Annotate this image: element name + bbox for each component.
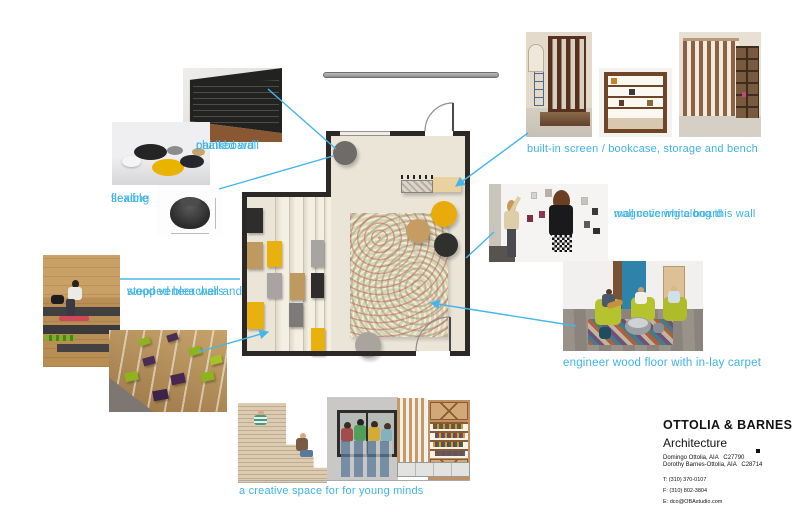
coat-hooks <box>401 175 435 179</box>
cushion-green <box>138 336 151 346</box>
sketch-person-jeans <box>300 450 313 457</box>
cushion-yellow <box>267 241 282 267</box>
pouf-black <box>134 144 167 160</box>
phone-line: T: (310) 370-0107 <box>663 477 801 483</box>
wall-left-upper <box>326 131 331 195</box>
round-table-top <box>628 318 648 328</box>
book-spines <box>433 442 463 447</box>
cushion-purple <box>170 373 186 386</box>
red-cushion-strip <box>59 316 89 321</box>
label-line: stepped bleachers <box>127 286 224 300</box>
teen-top-green <box>354 425 366 441</box>
pouf-gray <box>167 146 183 155</box>
pinned-paper <box>592 208 598 215</box>
sketch-slats <box>397 398 427 462</box>
woman-top <box>635 292 647 304</box>
firm-name: OTTOLIA & BARNES <box>663 418 801 432</box>
photo-bleachers-cushions <box>109 330 227 412</box>
bench-seat <box>433 177 461 192</box>
bench-hatched <box>401 180 433 193</box>
arched-window <box>528 44 544 72</box>
cushion-green <box>124 371 139 383</box>
woman-left-legs <box>507 229 516 257</box>
scale-bar <box>323 72 499 78</box>
wall-left <box>242 192 247 356</box>
plan-pouf-gray <box>333 141 357 165</box>
label-line: built-in screen / bookcase, storage and … <box>527 143 758 156</box>
sketch-person-shirt <box>254 415 267 425</box>
cushion-green <box>200 371 215 383</box>
cushion-gray <box>267 273 282 298</box>
pouf-top-seam <box>180 198 200 206</box>
bookcase-base <box>608 118 663 129</box>
ladder <box>534 72 544 106</box>
backpack-gray <box>653 323 664 333</box>
cubby-cabinet <box>736 46 759 118</box>
cushion-purple <box>152 389 169 401</box>
cushion-tan <box>247 242 263 269</box>
teen-top-yellow <box>368 427 380 441</box>
pinned-paper <box>531 192 537 199</box>
book-spines <box>433 424 463 429</box>
fax-line: F: (310) 802-3804 <box>663 488 801 494</box>
cushion-darkgray <box>289 303 303 327</box>
pinned-paper <box>584 221 590 228</box>
bag <box>51 295 64 304</box>
photo-whiteboard <box>489 184 608 262</box>
woman-right-top <box>549 205 573 236</box>
wall-right <box>465 131 470 356</box>
sketch-baseline <box>238 480 470 481</box>
bench-drawers <box>540 112 590 126</box>
title-block: OTTOLIA & BARNES Architecture Domingo Ot… <box>663 418 801 505</box>
photo-bookcase <box>599 68 672 137</box>
photo-lounge-guitar <box>563 261 703 351</box>
cushion-yellow <box>247 302 264 329</box>
cushion-gray <box>311 240 324 267</box>
label-line: engineer wood floor with in-lay carpet <box>563 357 761 371</box>
cushion-black <box>247 208 263 233</box>
email-line: E: dco@OBAstudio.com <box>663 499 801 505</box>
photo-dark-pouf <box>157 185 223 237</box>
cushion-green <box>188 346 202 357</box>
cushion-black <box>311 273 324 298</box>
teen-top-red <box>341 428 353 442</box>
label-line: wall covering along this wall <box>614 208 756 221</box>
photo-slat-wall <box>679 32 761 137</box>
label-line: seating <box>111 193 149 207</box>
backpack-teal <box>599 327 611 339</box>
plan-pouf-yellow <box>431 201 457 227</box>
book-spines <box>435 433 465 438</box>
wall-top-left-room <box>242 192 331 197</box>
discipline: Architecture <box>663 436 801 450</box>
teen-jeans <box>341 441 392 477</box>
cushion-tan <box>290 273 305 300</box>
pinned-paper <box>593 228 600 234</box>
pink-accent <box>742 92 746 97</box>
cushion-purple <box>166 332 179 342</box>
cushion-green <box>209 355 223 366</box>
shelf-items <box>611 78 617 84</box>
wood-slats <box>683 38 739 116</box>
pinned-paper <box>545 189 552 197</box>
books-row <box>45 335 75 341</box>
person-legs <box>66 299 75 316</box>
pinned-paper <box>581 197 588 205</box>
dimension-line-v <box>215 198 216 229</box>
shelf-items <box>647 100 653 106</box>
door-opening-top <box>425 131 453 136</box>
door-opening-bottom <box>416 351 450 356</box>
label-line: a creative space for for young minds <box>239 485 424 498</box>
sketch-cabinet-row <box>397 462 470 477</box>
label-line: painted wall <box>196 140 259 154</box>
elevation-sketch <box>238 395 470 483</box>
cushion-purple <box>142 356 156 367</box>
shelf-items <box>629 89 635 95</box>
x-panel-top <box>430 402 468 420</box>
book-spines <box>435 451 465 456</box>
plan-pouf-tan <box>406 219 430 243</box>
step-shadow <box>43 307 120 316</box>
woman-right-skirt <box>552 235 572 252</box>
bleacher-step <box>324 197 331 351</box>
chalk-writing <box>193 80 279 128</box>
wood-slats <box>548 36 586 112</box>
license-line: Domingo Ottolia, AIA C27790 <box>663 455 801 461</box>
floor <box>679 116 761 137</box>
window-top <box>340 131 390 136</box>
plan-pouf-black <box>434 233 458 257</box>
title-block-marker <box>756 449 760 453</box>
pinned-paper <box>539 211 545 218</box>
license-line: Dorothy Barnes-Ottolia, AIA C28714 <box>663 462 801 468</box>
shelf-items <box>619 100 624 106</box>
stepped-bleachers-plan <box>247 197 331 351</box>
sketch-bleacher <box>238 403 327 483</box>
pouf-navy <box>180 155 204 168</box>
pinned-paper <box>527 215 533 222</box>
presentation-board: chalkboard painted wall flexible seating… <box>0 0 803 520</box>
dimension-line-h <box>171 233 209 234</box>
inlay-carpet <box>350 213 448 337</box>
woman-top <box>668 291 680 303</box>
photo-slat-screen <box>526 32 592 137</box>
